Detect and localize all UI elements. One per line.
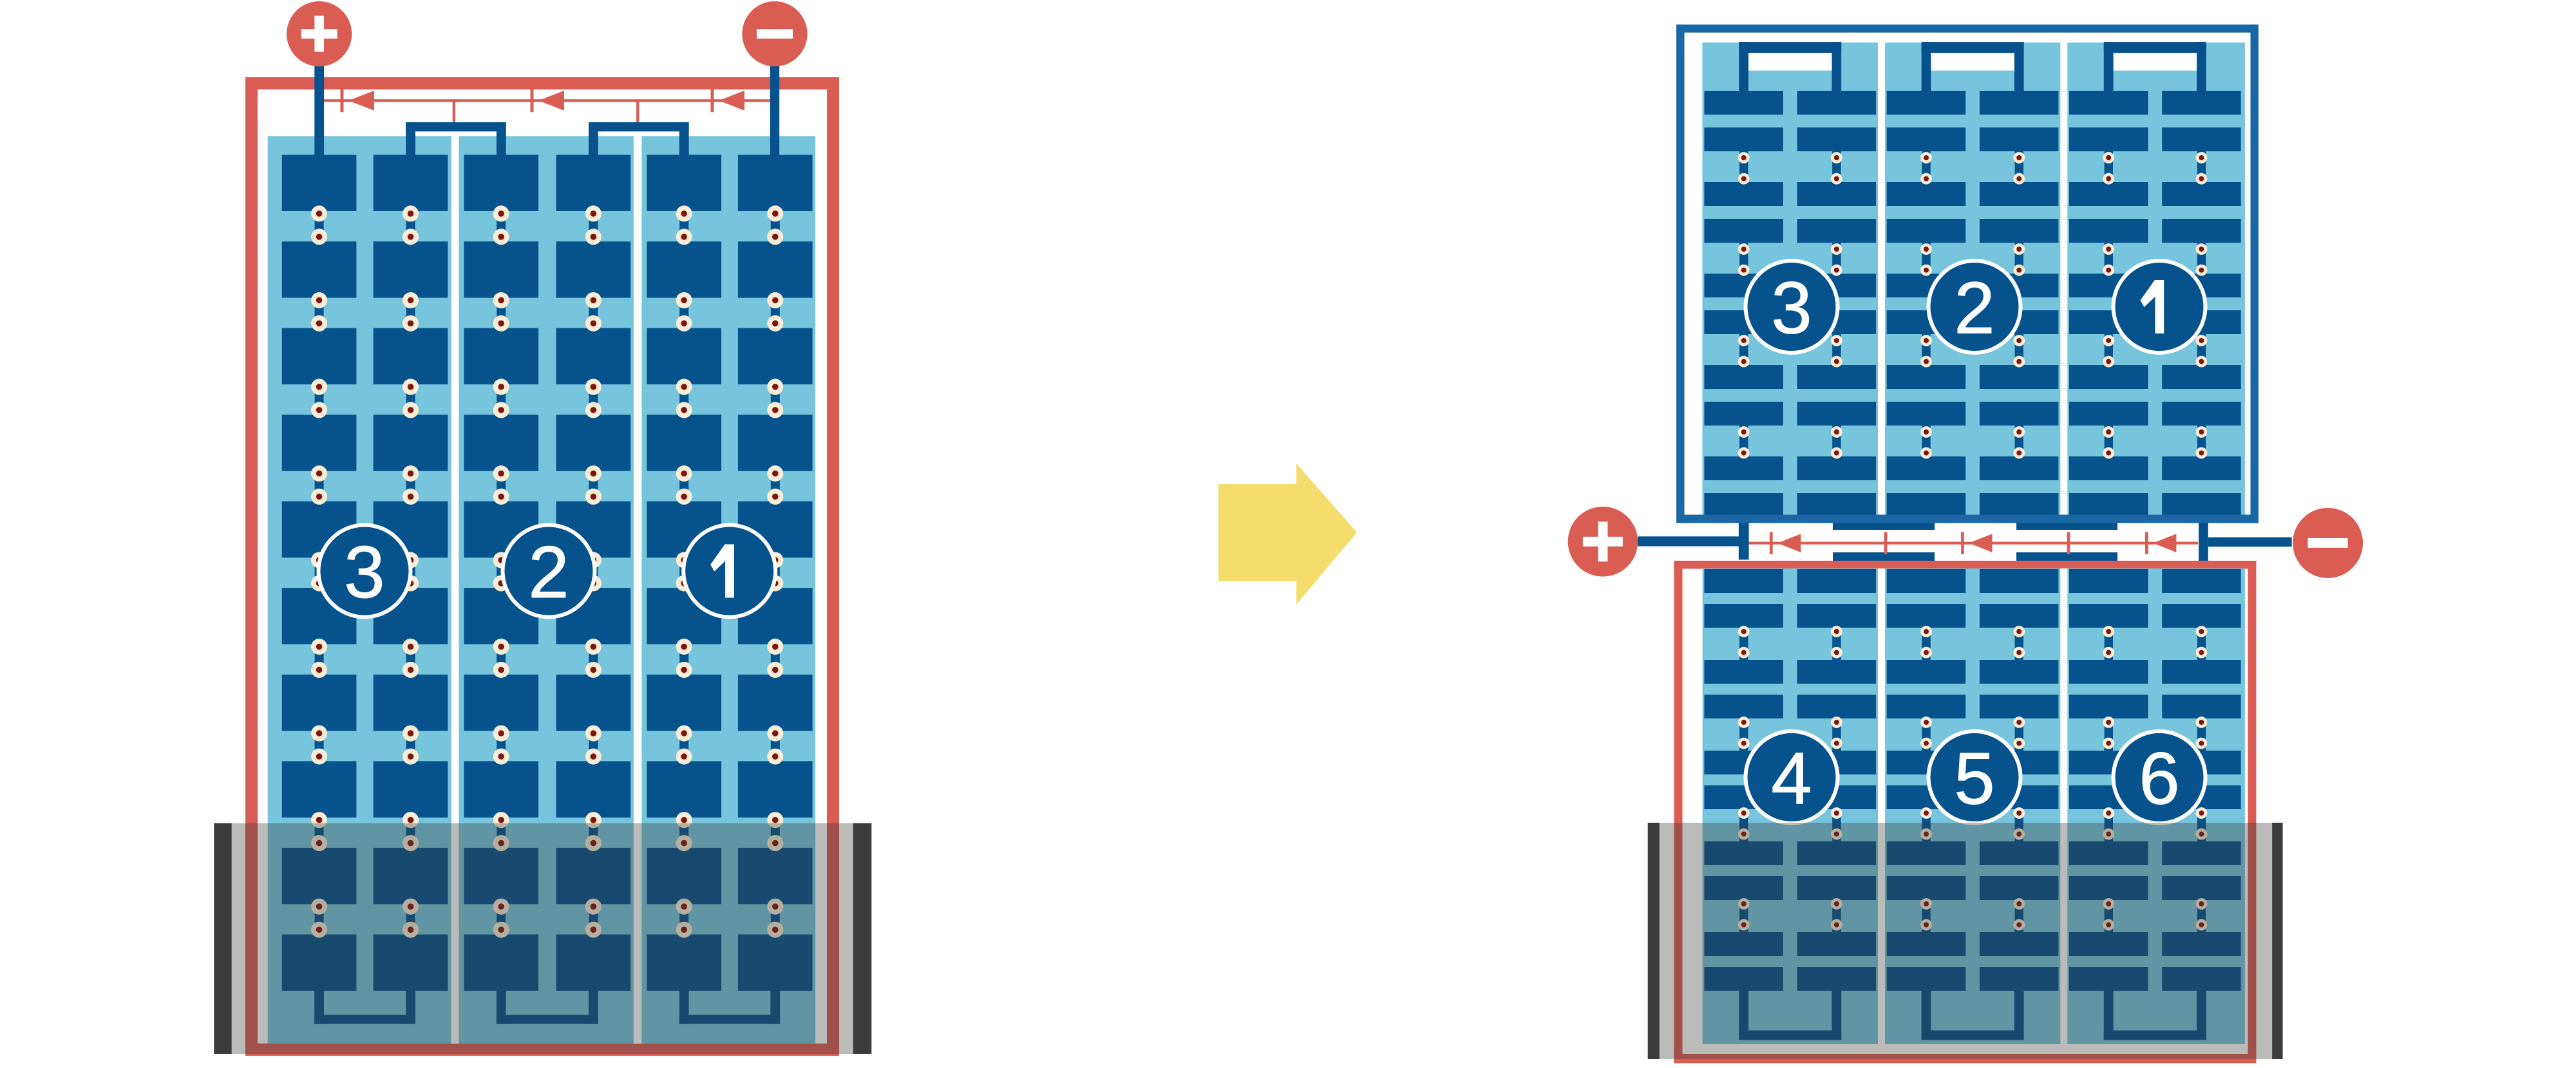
svg-text:2: 2 (528, 532, 569, 614)
svg-text:4: 4 (1771, 738, 1812, 820)
svg-text:5: 5 (1954, 738, 1994, 820)
svg-text:6: 6 (2139, 738, 2179, 820)
svg-text:3: 3 (1771, 268, 1812, 350)
svg-text:3: 3 (344, 532, 384, 614)
svg-text:2: 2 (1954, 268, 1994, 350)
